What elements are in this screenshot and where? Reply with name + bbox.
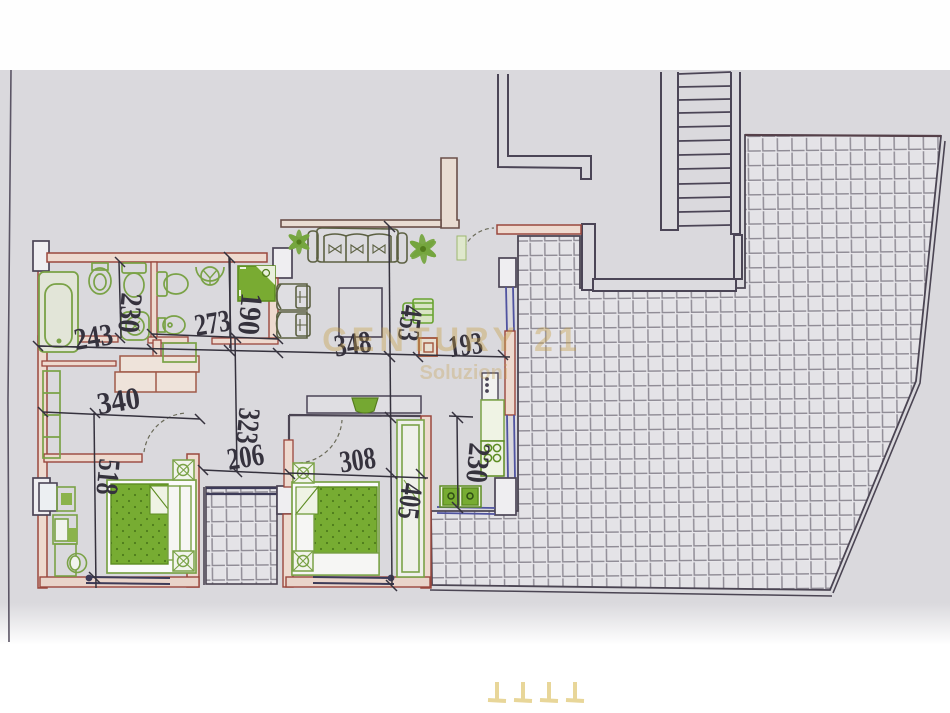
svg-text:Soluzioni: Soluzioni: [420, 362, 509, 384]
svg-text:308: 308: [337, 440, 378, 480]
svg-text:340: 340: [94, 380, 142, 421]
svg-text:230: 230: [111, 291, 149, 334]
svg-text:405: 405: [391, 481, 430, 521]
svg-text:206: 206: [224, 436, 266, 476]
svg-text:243: 243: [71, 316, 115, 357]
svg-text:518: 518: [89, 457, 127, 496]
svg-text:CENTURY 21: CENTURY 21: [322, 321, 582, 359]
svg-text:190: 190: [231, 291, 270, 336]
svg-text:230: 230: [459, 441, 497, 484]
svg-text:273: 273: [192, 303, 233, 343]
